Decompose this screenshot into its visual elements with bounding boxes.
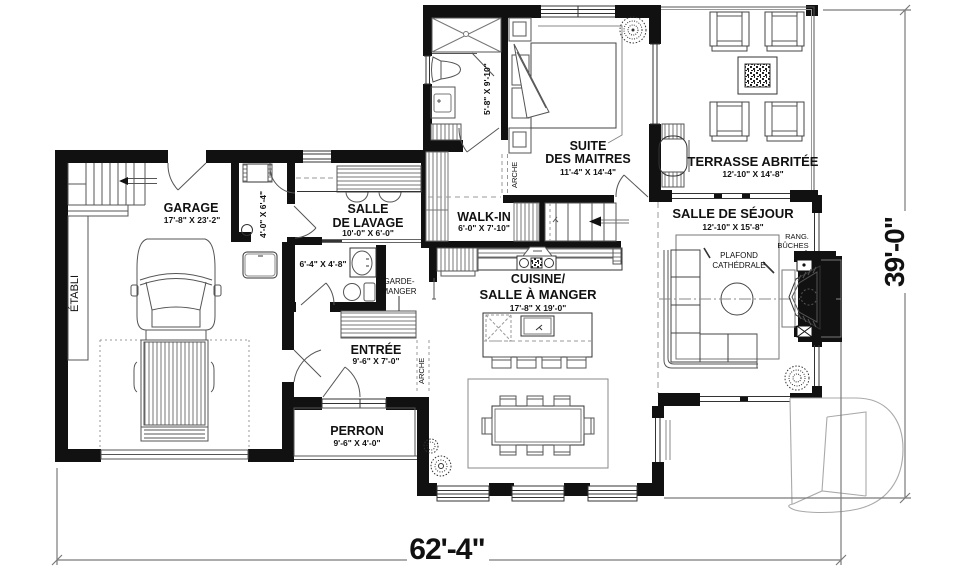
svg-text:12'-10" X 15'-8": 12'-10" X 15'-8"	[702, 222, 763, 232]
svg-text:9'-6" X 7'-0": 9'-6" X 7'-0"	[352, 356, 399, 366]
svg-text:DES MAITRES: DES MAITRES	[545, 152, 630, 166]
svg-text:17'-8" X 19'-0": 17'-8" X 19'-0"	[510, 303, 567, 313]
svg-text:GARDE-: GARDE-	[383, 277, 414, 286]
svg-text:17'-8" X 23'-2": 17'-8" X 23'-2"	[164, 215, 221, 225]
svg-text:MANGER: MANGER	[381, 287, 416, 296]
svg-text:9'-6" X 4'-0": 9'-6" X 4'-0"	[333, 438, 380, 448]
svg-text:GARAGE: GARAGE	[164, 201, 219, 215]
svg-text:RANG.: RANG.	[785, 232, 809, 241]
svg-text:10'-0" X 6'-0": 10'-0" X 6'-0"	[342, 228, 394, 238]
svg-text:BÛCHES: BÛCHES	[777, 241, 808, 250]
svg-text:12'-10" X 14'-8": 12'-10" X 14'-8"	[722, 169, 783, 179]
svg-text:ARCHE: ARCHE	[417, 358, 426, 384]
svg-text:SALLE DE SÉJOUR: SALLE DE SÉJOUR	[672, 206, 794, 221]
svg-text:TERRASSE ABRITÉE: TERRASSE ABRITÉE	[688, 154, 819, 169]
svg-text:SUITE: SUITE	[570, 139, 607, 153]
svg-text:39'-0": 39'-0"	[879, 217, 910, 287]
svg-text:CATHÉDRALE: CATHÉDRALE	[712, 261, 765, 270]
svg-text:PERRON: PERRON	[330, 424, 383, 438]
svg-text:SALLE À MANGER: SALLE À MANGER	[480, 287, 598, 302]
svg-text:WALK-IN: WALK-IN	[457, 210, 510, 224]
svg-text:SALLE: SALLE	[348, 202, 389, 216]
svg-text:4'-0" X 6'-4": 4'-0" X 6'-4"	[258, 191, 268, 238]
svg-text:ARCHE: ARCHE	[510, 162, 519, 188]
svg-text:6'-0" X 7'-10": 6'-0" X 7'-10"	[458, 223, 510, 233]
svg-text:6'-4" X 4'-8": 6'-4" X 4'-8"	[299, 259, 346, 269]
svg-text:ENTRÉE: ENTRÉE	[351, 342, 402, 357]
svg-text:5'-8" X 9'-10": 5'-8" X 9'-10"	[482, 63, 492, 115]
svg-text:CUISINE/: CUISINE/	[511, 272, 566, 286]
svg-text:ÉTABLI: ÉTABLI	[68, 275, 81, 312]
svg-text:PLAFOND: PLAFOND	[720, 251, 758, 260]
svg-text:62'-4": 62'-4"	[409, 533, 484, 566]
svg-text:11'-4" X 14'-4": 11'-4" X 14'-4"	[560, 167, 616, 177]
